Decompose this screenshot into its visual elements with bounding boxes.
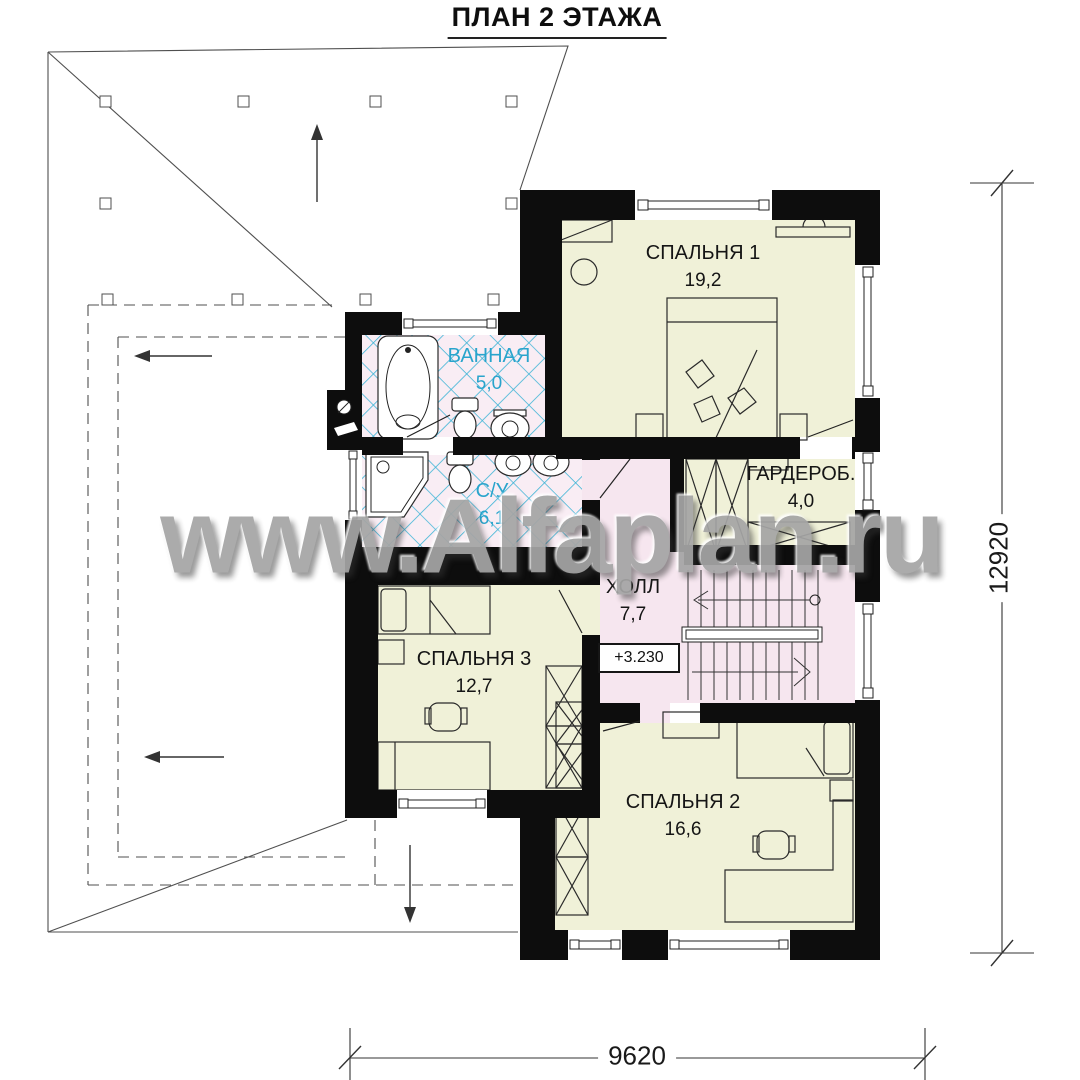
room-label-bedroom-1: СПАЛЬНЯ 1 19,2: [646, 240, 760, 294]
room-label-bedroom-2: СПАЛЬНЯ 2 16,6: [626, 789, 740, 843]
window-bedroom2-bottom-1: [568, 930, 622, 960]
vent-shaft: [327, 390, 362, 450]
bathroom-toilet: [452, 398, 478, 439]
room-label-bedroom-3: СПАЛЬНЯ 3 12,7: [417, 646, 531, 700]
dimension-horizontal: 9620: [598, 1041, 676, 1072]
window-bathroom-top: [402, 312, 498, 335]
bathtub: [378, 336, 438, 439]
window-bedroom1-right: [855, 265, 880, 398]
floor-plan-page: ПЛАН 2 ЭТАЖА СПАЛЬНЯ 1 19,2 ВАННАЯ 5,0 С…: [0, 0, 1080, 1080]
elevation-mark: +3.230: [598, 643, 680, 673]
dimension-vertical: 12920: [984, 514, 1015, 602]
window-bedroom3-bottom: [397, 790, 487, 818]
watermark: www.Alfaplan.ru: [160, 477, 941, 598]
roof-marker-squares: [100, 96, 517, 305]
window-bedroom1-top: [635, 190, 772, 220]
window-bedroom2-bottom-2: [668, 930, 790, 960]
room-label-bathroom: ВАННАЯ 5,0: [448, 343, 531, 397]
window-stairwell-right: [855, 602, 880, 700]
plan-title: ПЛАН 2 ЭТАЖА: [448, 2, 667, 39]
